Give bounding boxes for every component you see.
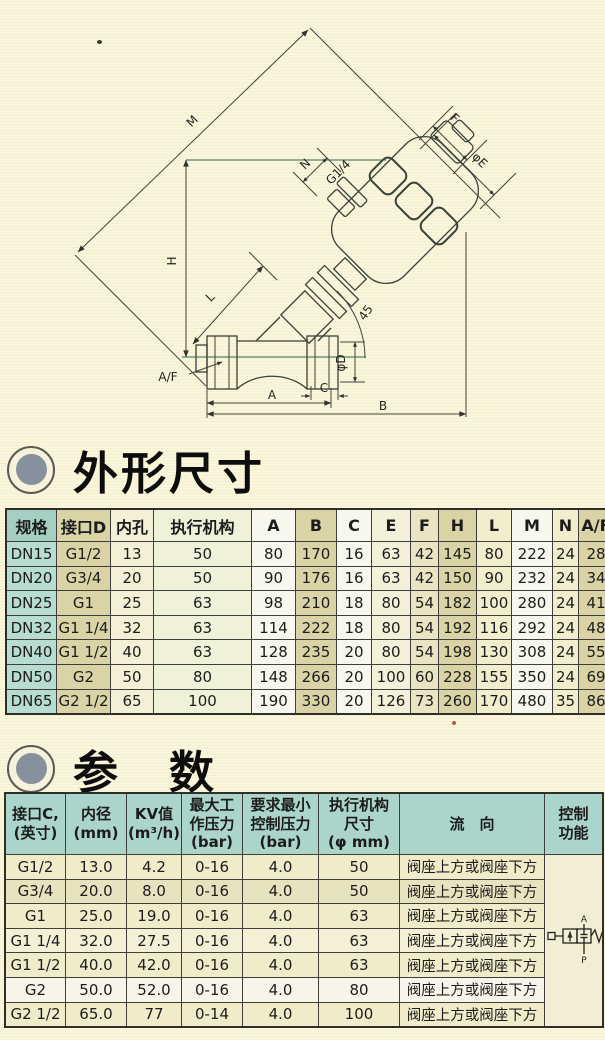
dim-label-g14: G1/4 xyxy=(323,157,353,187)
parameters-cell-header: 要求最小 控制压力 (bar) xyxy=(243,793,319,855)
dimensions-cell-header: E xyxy=(372,509,411,542)
dimensions-cell: 90 xyxy=(252,566,296,591)
dimensions-cell: 170 xyxy=(296,542,337,567)
dimensions-cell-header: 执行机构 xyxy=(154,509,252,542)
parameters-cell: 4.0 xyxy=(243,1002,319,1027)
dimensions-cell: 63 xyxy=(372,542,411,567)
dimensions-cell: 20 xyxy=(337,664,372,689)
dimensions-cell: G3/4 xyxy=(57,566,111,591)
parameters-cell-row: G3/420.08.00-164.050阀座上方或阀座下方 xyxy=(5,879,603,904)
parameters-cell: G2 1/2 xyxy=(5,1002,66,1027)
dim-label-b: B xyxy=(379,399,387,413)
parameters-cell: 100 xyxy=(319,1002,400,1027)
section-bullet-icon xyxy=(7,446,55,494)
parameters-cell: 65.0 xyxy=(66,1002,127,1027)
dimensions-cell: 42 xyxy=(411,566,439,591)
parameters-cell: 0-16 xyxy=(182,977,243,1002)
section-title-outline: 外形尺寸 xyxy=(73,437,265,502)
parameters-table: 接口C, (英寸)内径 (mm)KV值 (m³/h)最大工 作压力 (bar)要… xyxy=(4,792,604,1028)
dim-label-af: A/F xyxy=(158,370,177,384)
dimensions-cell: 145 xyxy=(439,542,477,567)
parameters-cell: G1 1/2 xyxy=(5,953,66,978)
dimensions-cell: 40 xyxy=(111,640,154,665)
dimensions-cell-header: C xyxy=(337,509,372,542)
dimensions-cell: 55 xyxy=(579,640,605,665)
dimensions-cell: 24 xyxy=(553,566,579,591)
dimensions-cell: 24 xyxy=(553,591,579,616)
dimensions-cell: 32 xyxy=(111,615,154,640)
dimensions-cell: 222 xyxy=(512,542,553,567)
dim-label-phid: φD xyxy=(334,354,348,371)
section-outline-dimensions: 外形尺寸 xyxy=(7,437,265,502)
dimensions-cell: 50 xyxy=(154,566,252,591)
dimensions-cell: G2 xyxy=(57,664,111,689)
parameters-cell-row: G1 1/240.042.00-164.063阀座上方或阀座下方 xyxy=(5,953,603,978)
dimensions-cell: 50 xyxy=(111,664,154,689)
dim-label-a: A xyxy=(268,388,277,402)
dimensions-cell: 148 xyxy=(252,664,296,689)
dimensions-cell: 350 xyxy=(512,664,553,689)
dimensions-cell: 308 xyxy=(512,640,553,665)
dim-label-45: 45 xyxy=(356,302,376,323)
dimensions-cell-row: DN15G1/2135080170166342145802222428 xyxy=(6,542,605,567)
dimensions-cell-row: DN65G2 1/2651001903302012673260170480358… xyxy=(6,689,605,714)
dimensions-cell-row: DN20G3/4205090176166342150902322434 xyxy=(6,566,605,591)
dimensions-cell-header: H xyxy=(439,509,477,542)
dimensions-cell: 260 xyxy=(439,689,477,714)
parameters-cell: 0-16 xyxy=(182,928,243,953)
parameters-cell: 13.0 xyxy=(66,855,127,880)
parameters-cell: 27.5 xyxy=(127,928,182,953)
dimensions-cell: 54 xyxy=(411,640,439,665)
dimensions-cell-row: DN40G1 1/240631282352080541981303082455 xyxy=(6,640,605,665)
dimensions-cell: 100 xyxy=(154,689,252,714)
dimensions-cell: 86 xyxy=(579,689,605,714)
parameters-cell-header: KV值 (m³/h) xyxy=(127,793,182,855)
dimensions-cell: 20 xyxy=(111,566,154,591)
dimensions-cell: 25 xyxy=(111,591,154,616)
dimensions-cell: 90 xyxy=(477,566,512,591)
dimensions-cell: 24 xyxy=(553,640,579,665)
dimensions-cell: 20 xyxy=(337,640,372,665)
dim-label-phie: φE xyxy=(469,150,490,171)
dimensions-cell: 80 xyxy=(372,615,411,640)
dimensions-cell: 80 xyxy=(372,640,411,665)
parameters-cell-row: G1/213.04.20-164.050阀座上方或阀座下方 A P xyxy=(5,855,603,880)
dimensions-cell: 130 xyxy=(477,640,512,665)
dimensions-cell: 192 xyxy=(439,615,477,640)
parameters-cell-header: 内径 (mm) xyxy=(66,793,127,855)
dimensions-cell-header: M xyxy=(512,509,553,542)
scan-speck xyxy=(452,721,456,725)
parameters-cell: 42.0 xyxy=(127,953,182,978)
dimension-labels: M H L 45 A/F φD C A B F φE N G1/4 xyxy=(158,111,490,413)
parameters-cell: 0-16 xyxy=(182,953,243,978)
parameters-cell: 4.2 xyxy=(127,855,182,880)
parameters-cell: 0-16 xyxy=(182,855,243,880)
parameters-cell: 阀座上方或阀座下方 xyxy=(400,879,545,904)
parameters-cell: 阀座上方或阀座下方 xyxy=(400,953,545,978)
scan-speck xyxy=(97,40,102,44)
dim-label-c: C xyxy=(320,381,328,395)
dimensions-cell: 18 xyxy=(337,591,372,616)
parameters-cell-header: 控制 功能 xyxy=(545,793,604,855)
dimensions-cell: 50 xyxy=(154,542,252,567)
dimensions-cell: DN40 xyxy=(6,640,57,665)
parameters-cell: G3/4 xyxy=(5,879,66,904)
dimensions-cell: 128 xyxy=(252,640,296,665)
dimensions-cell-header: L xyxy=(477,509,512,542)
parameters-cell: 0-16 xyxy=(182,879,243,904)
dimensions-cell: 100 xyxy=(372,664,411,689)
dimension-lines xyxy=(75,28,516,418)
dimensions-cell: 80 xyxy=(372,591,411,616)
dimensions-cell: 235 xyxy=(296,640,337,665)
parameters-cell: 19.0 xyxy=(127,904,182,929)
parameters-cell-row: G2 1/265.0770-144.0100阀座上方或阀座下方 xyxy=(5,1002,603,1027)
parameters-cell: 0-14 xyxy=(182,1002,243,1027)
dimensions-table-header-row: 规格接口D内孔执行机构ABCEFHLMNA/F xyxy=(6,509,605,542)
dim-label-n: N xyxy=(297,156,313,172)
dimensions-cell-header: 内孔 xyxy=(111,509,154,542)
parameters-cell-row: G250.052.00-164.080阀座上方或阀座下方 xyxy=(5,977,603,1002)
parameters-cell-header: 最大工 作压力 (bar) xyxy=(182,793,243,855)
dimensions-cell: 63 xyxy=(154,640,252,665)
dim-label-m: M xyxy=(184,113,201,130)
dimensions-cell: 155 xyxy=(477,664,512,689)
dimensions-cell-row: DN32G1 1/432631142221880541921162922448 xyxy=(6,615,605,640)
dimensions-cell-row: DN50G2508014826620100602281553502469 xyxy=(6,664,605,689)
dimensions-cell: 73 xyxy=(411,689,439,714)
dimensions-cell: 65 xyxy=(111,689,154,714)
control-function-cell: A P xyxy=(545,855,604,1028)
dimensions-cell-header: 规格 xyxy=(6,509,57,542)
dimensions-cell-header: N xyxy=(553,509,579,542)
dimensions-cell: 41 xyxy=(579,591,605,616)
dimensions-cell-header: F xyxy=(411,509,439,542)
dimensions-cell: 280 xyxy=(512,591,553,616)
dimensions-cell: 170 xyxy=(477,689,512,714)
dimensions-cell: G1/2 xyxy=(57,542,111,567)
parameters-cell: G1 xyxy=(5,904,66,929)
dimensions-cell: 16 xyxy=(337,566,372,591)
parameters-cell: 25.0 xyxy=(66,904,127,929)
dimensions-cell-row: DN25G12563982101880541821002802441 xyxy=(6,591,605,616)
dimensions-cell: 150 xyxy=(439,566,477,591)
parameters-cell-header: 接口C, (英寸) xyxy=(5,793,66,855)
dimensions-cell: 210 xyxy=(296,591,337,616)
dimensions-cell: DN50 xyxy=(6,664,57,689)
dimensions-cell: 176 xyxy=(296,566,337,591)
parameters-cell: 77 xyxy=(127,1002,182,1027)
parameters-cell: 4.0 xyxy=(243,904,319,929)
parameters-cell: 52.0 xyxy=(127,977,182,1002)
parameters-cell: 阀座上方或阀座下方 xyxy=(400,1002,545,1027)
dimensions-cell: 480 xyxy=(512,689,553,714)
parameters-cell-row: G1 1/432.027.50-164.063阀座上方或阀座下方 xyxy=(5,928,603,953)
dimensions-cell: 80 xyxy=(252,542,296,567)
parameters-table-header-row: 接口C, (英寸)内径 (mm)KV值 (m³/h)最大工 作压力 (bar)要… xyxy=(5,793,603,855)
parameters-cell-row: G125.019.00-164.063阀座上方或阀座下方 xyxy=(5,904,603,929)
dimensions-cell: 80 xyxy=(477,542,512,567)
dimensions-cell: 126 xyxy=(372,689,411,714)
dimensions-cell: 198 xyxy=(439,640,477,665)
parameters-cell: G1/2 xyxy=(5,855,66,880)
parameters-cell: 50.0 xyxy=(66,977,127,1002)
parameters-cell: G1 1/4 xyxy=(5,928,66,953)
dimensions-cell: 28 xyxy=(579,542,605,567)
symbol-port-a-label: A xyxy=(581,915,588,925)
dimensions-cell: DN20 xyxy=(6,566,57,591)
dimensions-cell: 54 xyxy=(411,591,439,616)
dimensions-cell: 80 xyxy=(154,664,252,689)
parameters-cell: 63 xyxy=(319,904,400,929)
dimensions-cell: 48 xyxy=(579,615,605,640)
dimensions-cell: G1 1/2 xyxy=(57,640,111,665)
dimensions-cell: DN65 xyxy=(6,689,57,714)
dimensions-cell: 182 xyxy=(439,591,477,616)
parameters-cell: 40.0 xyxy=(66,953,127,978)
parameters-cell: 阀座上方或阀座下方 xyxy=(400,928,545,953)
dimensions-cell: G1 1/4 xyxy=(57,615,111,640)
parameters-cell: 50 xyxy=(319,879,400,904)
dimensions-cell: 54 xyxy=(411,615,439,640)
symbol-port-p-label: P xyxy=(581,956,587,965)
parameters-cell: 80 xyxy=(319,977,400,1002)
dimensions-cell: 63 xyxy=(154,615,252,640)
parameters-cell-header: 流 向 xyxy=(400,793,545,855)
dimensions-cell: 34 xyxy=(579,566,605,591)
parameters-cell: G2 xyxy=(5,977,66,1002)
parameters-cell: 50 xyxy=(319,855,400,880)
dimensions-cell: 13 xyxy=(111,542,154,567)
parameters-cell: 4.0 xyxy=(243,953,319,978)
dimensions-cell: 100 xyxy=(477,591,512,616)
parameters-cell: 4.0 xyxy=(243,928,319,953)
dimensions-cell: G1 xyxy=(57,591,111,616)
dimensions-cell: 292 xyxy=(512,615,553,640)
dimensions-table: 规格接口D内孔执行机构ABCEFHLMNA/F DN15G1/213508017… xyxy=(5,508,605,715)
dimensions-cell: 69 xyxy=(579,664,605,689)
dimensions-cell: 114 xyxy=(252,615,296,640)
dimensions-cell: 228 xyxy=(439,664,477,689)
parameters-cell-header: 执行机构 尺寸 (φ mm) xyxy=(319,793,400,855)
dimensions-cell: 24 xyxy=(553,615,579,640)
dimensions-cell: DN15 xyxy=(6,542,57,567)
parameters-cell: 8.0 xyxy=(127,879,182,904)
parameters-cell: 阀座上方或阀座下方 xyxy=(400,977,545,1002)
parameters-cell: 0-16 xyxy=(182,904,243,929)
parameters-cell: 阀座上方或阀座下方 xyxy=(400,855,545,880)
dimensions-cell: DN25 xyxy=(6,591,57,616)
dimensions-cell: 63 xyxy=(154,591,252,616)
dimensions-cell-header: 接口D xyxy=(57,509,111,542)
parameters-cell: 63 xyxy=(319,928,400,953)
dimensions-cell: 266 xyxy=(296,664,337,689)
dimensions-cell: 222 xyxy=(296,615,337,640)
dimensions-cell-header: A xyxy=(252,509,296,542)
parameters-cell: 20.0 xyxy=(66,879,127,904)
dim-label-l: L xyxy=(203,290,218,305)
dimensions-cell: 330 xyxy=(296,689,337,714)
parameters-cell: 4.0 xyxy=(243,855,319,880)
dimensions-cell: 16 xyxy=(337,542,372,567)
dimensions-cell-header: A/F xyxy=(579,509,605,542)
valve-dimension-drawing: M H L 45 A/F φD C A B F φE N G1/4 xyxy=(0,0,605,436)
dimensions-cell: 24 xyxy=(553,542,579,567)
section-bullet-icon xyxy=(7,745,55,793)
dimensions-cell: 18 xyxy=(337,615,372,640)
dimensions-cell: 35 xyxy=(553,689,579,714)
dimensions-cell: 20 xyxy=(337,689,372,714)
dimensions-cell: 60 xyxy=(411,664,439,689)
dimensions-cell: 190 xyxy=(252,689,296,714)
parameters-cell: 阀座上方或阀座下方 xyxy=(400,904,545,929)
dimensions-cell: DN32 xyxy=(6,615,57,640)
parameters-cell: 32.0 xyxy=(66,928,127,953)
pneumatic-valve-symbol: A P xyxy=(545,913,603,965)
dimensions-cell: 24 xyxy=(553,664,579,689)
dimensions-cell: 63 xyxy=(372,566,411,591)
parameters-cell: 4.0 xyxy=(243,977,319,1002)
dimensions-cell: 232 xyxy=(512,566,553,591)
catalog-page: M H L 45 A/F φD C A B F φE N G1/4 外形尺寸 规… xyxy=(0,0,605,1040)
dimensions-cell-header: B xyxy=(296,509,337,542)
dimensions-cell: 42 xyxy=(411,542,439,567)
dimensions-cell: G2 1/2 xyxy=(57,689,111,714)
dim-label-h: H xyxy=(165,256,179,265)
dimensions-cell: 116 xyxy=(477,615,512,640)
dimensions-cell: 98 xyxy=(252,591,296,616)
parameters-cell: 4.0 xyxy=(243,879,319,904)
parameters-cell: 63 xyxy=(319,953,400,978)
